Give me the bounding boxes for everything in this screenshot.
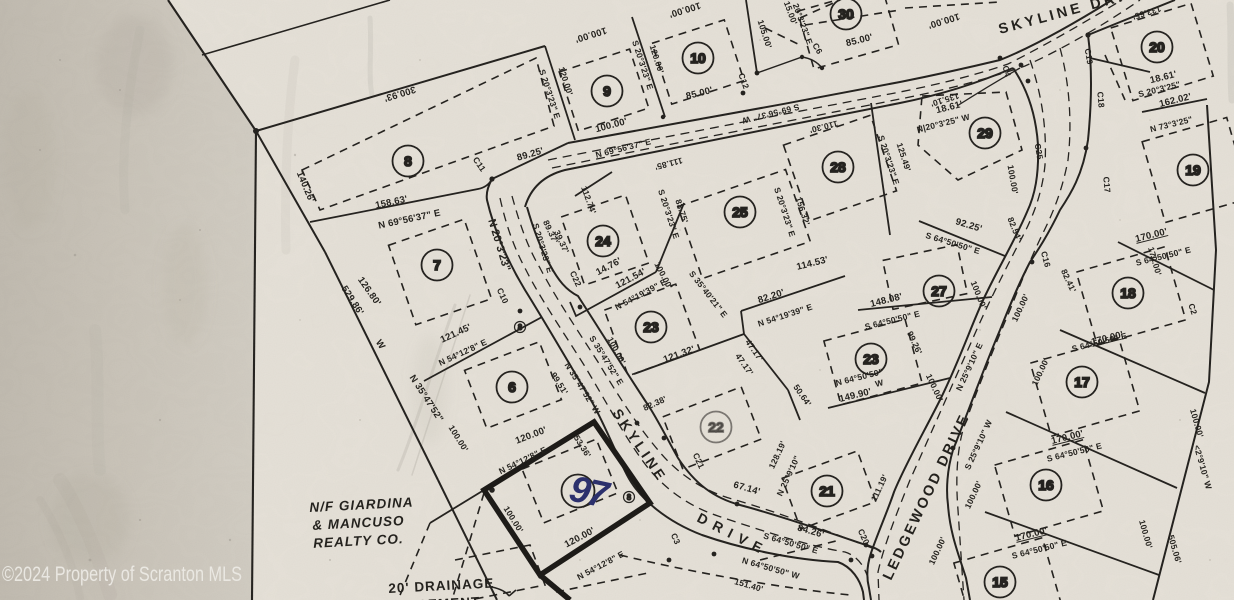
svg-text:8: 8 xyxy=(404,153,412,169)
svg-text:29: 29 xyxy=(977,125,993,141)
svg-text:16: 16 xyxy=(1038,477,1054,493)
svg-text:27: 27 xyxy=(931,283,947,299)
svg-text:10: 10 xyxy=(690,50,706,66)
svg-text:19: 19 xyxy=(1185,162,1201,178)
svg-text:8: 8 xyxy=(518,323,523,332)
svg-text:C18: C18 xyxy=(1095,91,1106,108)
svg-text:9: 9 xyxy=(603,83,611,99)
svg-text:8: 8 xyxy=(627,493,632,502)
svg-text:©2024 Property of Scranton MLS: ©2024 Property of Scranton MLS xyxy=(2,563,242,586)
svg-text:22: 22 xyxy=(708,419,724,435)
svg-text:28: 28 xyxy=(830,159,846,175)
svg-text:6: 6 xyxy=(508,379,516,395)
svg-text:7: 7 xyxy=(433,257,441,273)
svg-text:30: 30 xyxy=(838,6,854,22)
svg-text:18: 18 xyxy=(1120,285,1136,301)
svg-text:C17: C17 xyxy=(1101,176,1112,193)
svg-text:25: 25 xyxy=(732,204,748,220)
svg-text:24: 24 xyxy=(595,233,611,249)
svg-text:23: 23 xyxy=(643,319,659,335)
svg-text:23: 23 xyxy=(863,351,879,367)
svg-text:17: 17 xyxy=(1074,374,1090,390)
svg-text:21: 21 xyxy=(819,483,835,499)
svg-text:15: 15 xyxy=(992,574,1008,590)
svg-text:20: 20 xyxy=(1149,39,1165,55)
